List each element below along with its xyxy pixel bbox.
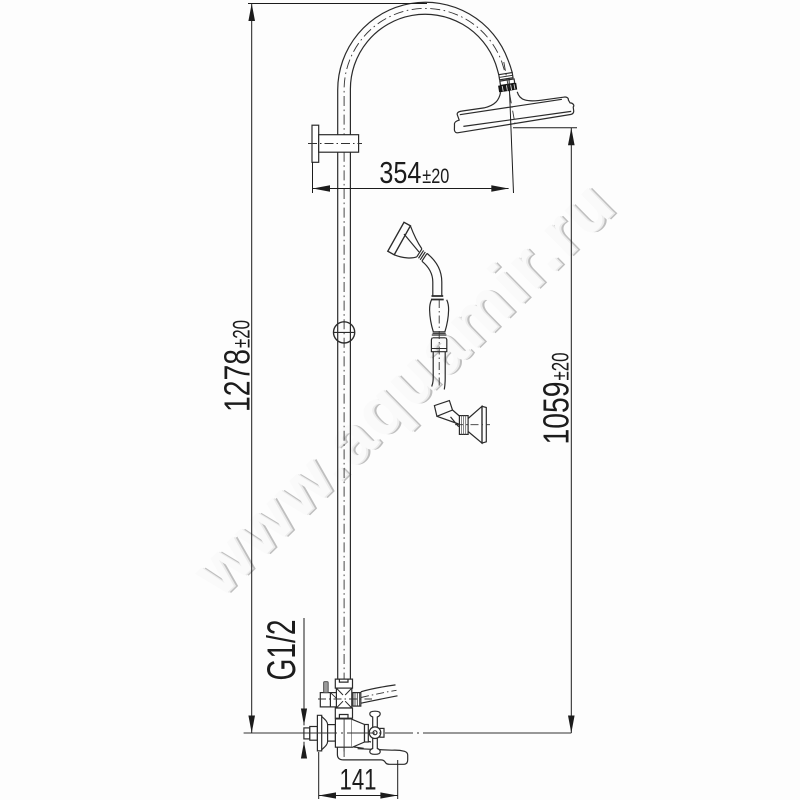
svg-text:1278: 1278	[217, 349, 258, 412]
svg-text:±20: ±20	[422, 165, 449, 188]
svg-text:±20: ±20	[548, 353, 575, 381]
svg-text:141: 141	[340, 764, 377, 797]
svg-text:1059: 1059	[536, 382, 577, 445]
svg-text:±20: ±20	[229, 320, 256, 348]
svg-text:G1/2: G1/2	[260, 620, 304, 681]
svg-text:354: 354	[379, 155, 421, 190]
